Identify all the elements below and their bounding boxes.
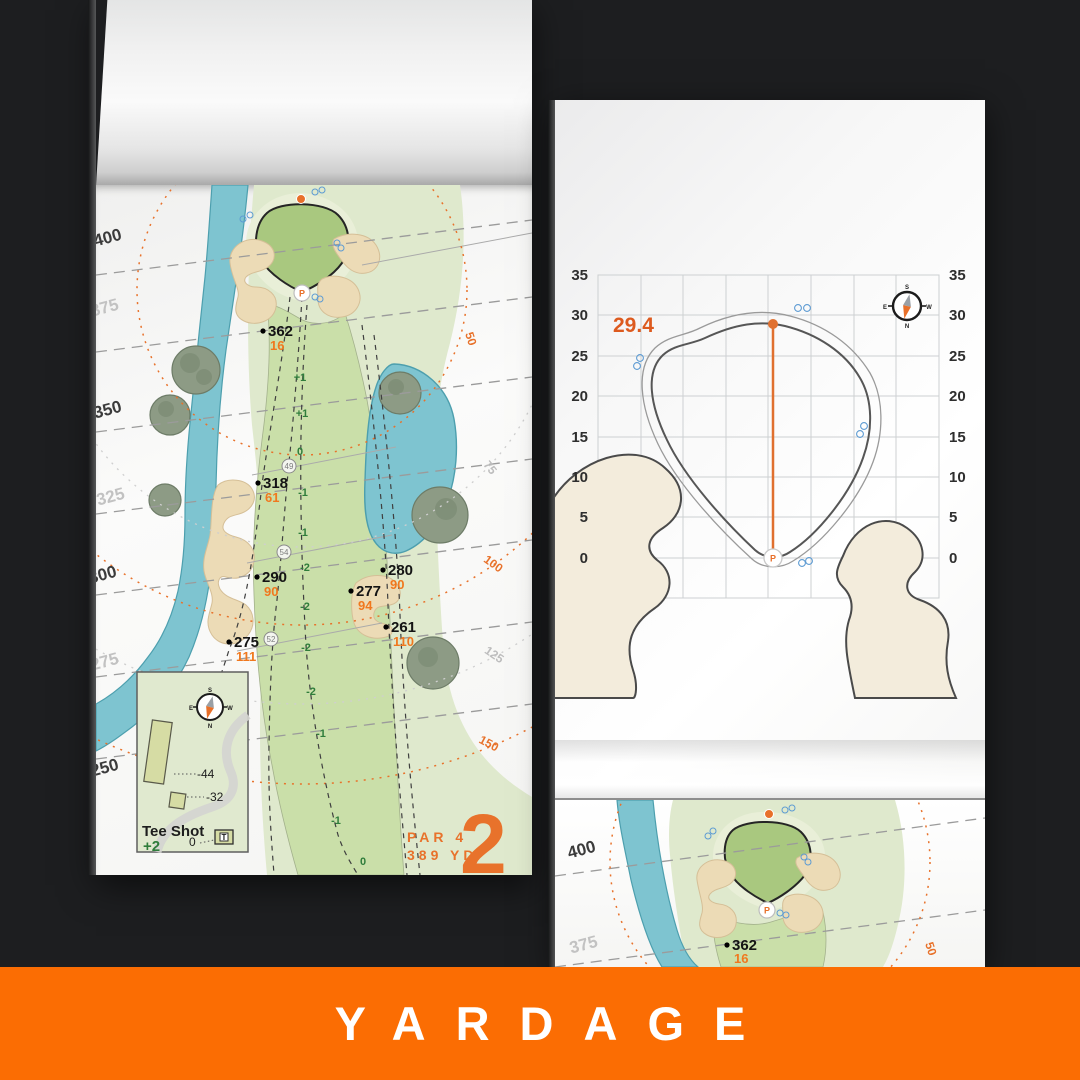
axis-label: 25	[571, 348, 588, 365]
apron-contour	[642, 312, 881, 566]
distance-label: 400	[565, 837, 597, 863]
pin-dot	[765, 810, 774, 819]
hole-map-illustration: 400 375 350 325 300 275 250 50 75 100 12…	[96, 185, 532, 875]
pin-dot	[297, 195, 306, 204]
compass-e: E	[189, 706, 193, 712]
marker-carry: 16	[270, 338, 284, 353]
ring-label: 75	[481, 458, 500, 477]
page-curl	[555, 740, 985, 800]
pin-position-marker: P	[759, 902, 775, 918]
banner-title: YARDAGE	[305, 996, 776, 1051]
elevation: -2	[306, 686, 316, 698]
marker-carry: 61	[265, 490, 279, 505]
axis-label: 35	[949, 267, 966, 284]
green-depth-value: 29.4	[613, 314, 654, 337]
compass-e: E	[883, 305, 887, 311]
green-detail-page: P 35 30 25 20 15 10 5	[555, 100, 985, 798]
axis-label: 25	[949, 348, 966, 365]
width-marker: 49	[285, 462, 294, 471]
ring-label: 50	[922, 940, 940, 957]
marker-carry: 90	[390, 577, 404, 592]
next-hole-map-page: P 400 375 50 362 16	[555, 800, 985, 967]
axis-label: 20	[571, 388, 588, 405]
left-book-spine	[88, 0, 96, 875]
compass-w: W	[926, 305, 932, 311]
inset-elevation-value: +2	[143, 838, 160, 855]
right-yardage-book: P 35 30 25 20 15 10 5	[555, 100, 985, 967]
width-marker: 52	[267, 635, 276, 644]
compass-n: N	[208, 724, 212, 730]
pin-position-marker: P	[294, 285, 310, 301]
distance-label: 350	[96, 397, 124, 423]
elevation: -1	[298, 487, 308, 499]
hole-number: 2	[460, 797, 507, 875]
pin-position-label: P	[299, 289, 305, 299]
ring-label: 100	[481, 552, 506, 575]
page-compass: S N E W	[883, 285, 932, 330]
elevation: 0	[360, 856, 366, 868]
axis-label: 15	[571, 429, 588, 446]
distance-label: 375	[96, 295, 121, 321]
distance-label: 400	[96, 225, 124, 251]
tee-shot-inset: S N E W -44 -32 0	[137, 672, 248, 855]
elevation: 0	[297, 446, 303, 458]
axis-label: 0	[580, 550, 588, 567]
ring-label: 50	[462, 330, 480, 347]
axis-label: 0	[949, 550, 957, 567]
marker-carry: 110	[393, 634, 414, 649]
flipped-blank-page	[96, 0, 532, 186]
axis-label: 10	[949, 469, 966, 486]
elevation: -1	[298, 527, 308, 539]
axis-label: 10	[571, 469, 588, 486]
next-page-illustration: P 400 375 50 362 16	[555, 800, 985, 967]
green-contours	[642, 312, 881, 566]
axis-label: 35	[571, 267, 588, 284]
compass-s: S	[208, 688, 212, 694]
pin-dot	[768, 319, 778, 329]
distance-label: 300	[96, 562, 119, 588]
distance-label: 250	[96, 755, 121, 781]
elevation: -1	[316, 728, 326, 740]
right-book-spine	[548, 100, 555, 967]
ring-label: 125	[482, 643, 507, 666]
elevation: -1	[331, 815, 341, 827]
elevation: -2	[300, 601, 310, 613]
pin-position-label: P	[770, 554, 776, 564]
green-detail-illustration: P 35 30 25 20 15 10 5	[555, 100, 985, 798]
compass-n: N	[905, 324, 909, 330]
left-yardage-book: 400 375 350 325 300 275 250 50 75 100 12…	[96, 0, 532, 875]
pin-position-label: P	[764, 906, 770, 916]
elevation: -2	[300, 562, 310, 574]
marker-carry: 90	[264, 584, 278, 599]
tee-front-label: -32	[206, 790, 224, 804]
distance-label: 375	[567, 932, 599, 958]
ring-labels: 50 75 100 125 150	[462, 330, 507, 754]
axis-label: 20	[949, 388, 966, 405]
axis-label: 5	[580, 509, 588, 526]
distance-label: 325	[96, 484, 127, 510]
marker-carry: 111	[236, 649, 256, 664]
yardage-banner: YARDAGE	[0, 967, 1080, 1080]
elevation: -2	[301, 642, 311, 654]
hole-map-page: 400 375 350 325 300 275 250 50 75 100 12…	[96, 185, 532, 875]
distance-label: 275	[96, 649, 121, 675]
axis-label: 15	[949, 429, 966, 446]
elevation: +1	[296, 408, 309, 420]
axis-label: 30	[949, 307, 966, 324]
tee-icon-letter: T	[222, 833, 227, 842]
axis-labels-right: 35 30 25 20 15 10 5 0	[949, 267, 966, 567]
tee-marker-icon: T	[215, 830, 233, 844]
forward-tee-box	[169, 792, 186, 809]
axis-label: 30	[571, 307, 588, 324]
marker-carry: 16	[734, 951, 748, 966]
yardage-book-product-image: 400 375 350 325 300 275 250 50 75 100 12…	[0, 0, 1080, 1080]
elevation: +1	[294, 372, 307, 384]
compass-s: S	[905, 285, 909, 291]
tee-back-label: -44	[197, 767, 215, 781]
axis-label: 5	[949, 509, 957, 526]
marker-carry: 94	[358, 598, 373, 613]
par-label: PAR 4	[407, 829, 467, 845]
width-marker: 54	[280, 548, 289, 557]
compass-w: W	[227, 706, 233, 712]
